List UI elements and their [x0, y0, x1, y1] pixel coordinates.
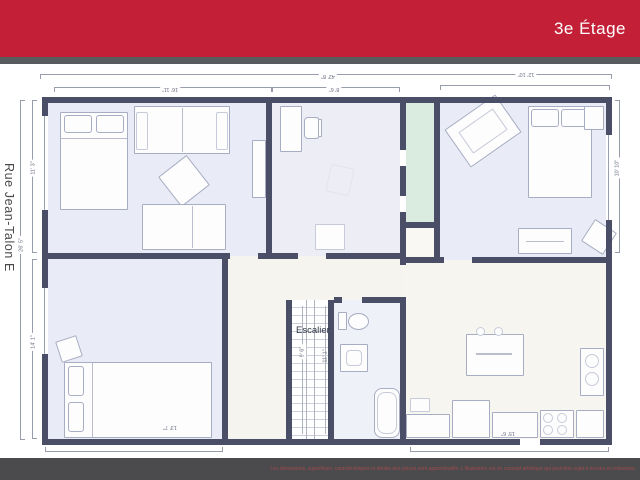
wall	[328, 300, 334, 439]
wall	[266, 97, 272, 259]
stool	[494, 327, 503, 336]
staircase	[292, 300, 328, 439]
hallway-lower-floor	[225, 300, 289, 442]
page-title: 3e Étage	[554, 19, 640, 39]
stool	[476, 327, 485, 336]
wall	[326, 253, 406, 259]
street-label: Rue Jean-Talon E	[2, 163, 16, 272]
wall	[472, 257, 612, 263]
window	[42, 288, 48, 354]
dimension-label: 13' 7"	[161, 423, 179, 429]
disclaimer-text: Les dimensions, superficies, caractérist…	[270, 466, 640, 472]
wall	[400, 297, 406, 445]
pillow	[64, 115, 92, 133]
sink	[585, 372, 599, 386]
sofa-cushion-line	[182, 108, 183, 152]
header-banner: 3e Étage	[0, 0, 640, 57]
wall	[266, 253, 298, 259]
dimension-label: 9' 6"	[300, 345, 306, 360]
dimension-line	[45, 447, 223, 452]
wall	[334, 297, 342, 303]
daybed-line	[192, 206, 193, 248]
wall	[434, 257, 444, 263]
pillow	[68, 366, 84, 396]
wall	[400, 222, 440, 228]
sideboard	[252, 140, 266, 198]
dimension-label: 12' 10"	[516, 70, 537, 76]
dimension-label: 10' 10"	[615, 158, 621, 179]
door-opening	[400, 196, 406, 212]
footer-bar: Les dimensions, superficies, caractérist…	[0, 458, 640, 480]
wall	[400, 97, 406, 265]
dimension-label: 26' 5"	[19, 236, 25, 254]
window	[606, 135, 612, 220]
side-table	[315, 224, 345, 250]
dimension-label: 11' 3"	[31, 159, 37, 176]
dimension-label: 11' 1"	[323, 347, 329, 364]
window	[42, 116, 48, 210]
dimension-label: 16' 11"	[160, 85, 180, 91]
sink	[585, 354, 599, 368]
side-table	[584, 106, 604, 130]
counter	[576, 410, 604, 438]
sofa-armrest	[216, 112, 228, 150]
office-chair-back	[318, 119, 322, 137]
wall	[434, 97, 440, 263]
dimension-label: 42' 8"	[319, 72, 337, 78]
staircase-rail	[306, 300, 307, 439]
wall	[42, 253, 230, 259]
header-divider	[0, 57, 640, 64]
wall	[42, 97, 612, 103]
counter	[406, 414, 450, 438]
refrigerator	[452, 400, 490, 438]
double-bed	[64, 362, 212, 438]
toilet	[348, 313, 369, 330]
staircase-label: Escalier	[296, 325, 330, 336]
dresser-handle-line	[526, 241, 564, 242]
bathtub-basin	[377, 392, 397, 434]
sink	[346, 350, 362, 366]
pillow	[531, 109, 559, 127]
wall	[286, 300, 292, 439]
wall	[222, 253, 228, 445]
small-appliance	[410, 398, 430, 412]
faucet-line	[476, 353, 512, 355]
door-opening	[520, 439, 540, 445]
burner	[557, 425, 567, 435]
door-opening	[400, 150, 406, 166]
daybed	[142, 204, 226, 250]
dimension-label: 15' 6"	[499, 429, 517, 435]
dimension-line	[410, 447, 609, 452]
burner	[543, 425, 553, 435]
staircase-rail	[314, 300, 315, 439]
pillow	[96, 115, 124, 133]
dimension-line	[20, 100, 25, 440]
bed-fold-line	[61, 138, 127, 139]
desk	[280, 106, 302, 152]
bed-fold-line	[92, 363, 93, 437]
pillow	[68, 402, 84, 432]
burner	[543, 413, 553, 423]
wall	[362, 297, 406, 303]
toilet-tank	[338, 312, 347, 330]
dimension-line	[440, 85, 610, 90]
burner	[557, 413, 567, 423]
dimension-label: 14' 1"	[31, 333, 37, 351]
sofa-armrest	[136, 112, 148, 150]
page: 3e Étage Rue Jean-Talon E	[0, 0, 640, 480]
kitchen-island	[466, 334, 524, 376]
dimension-label: 8' 6"	[327, 85, 342, 91]
